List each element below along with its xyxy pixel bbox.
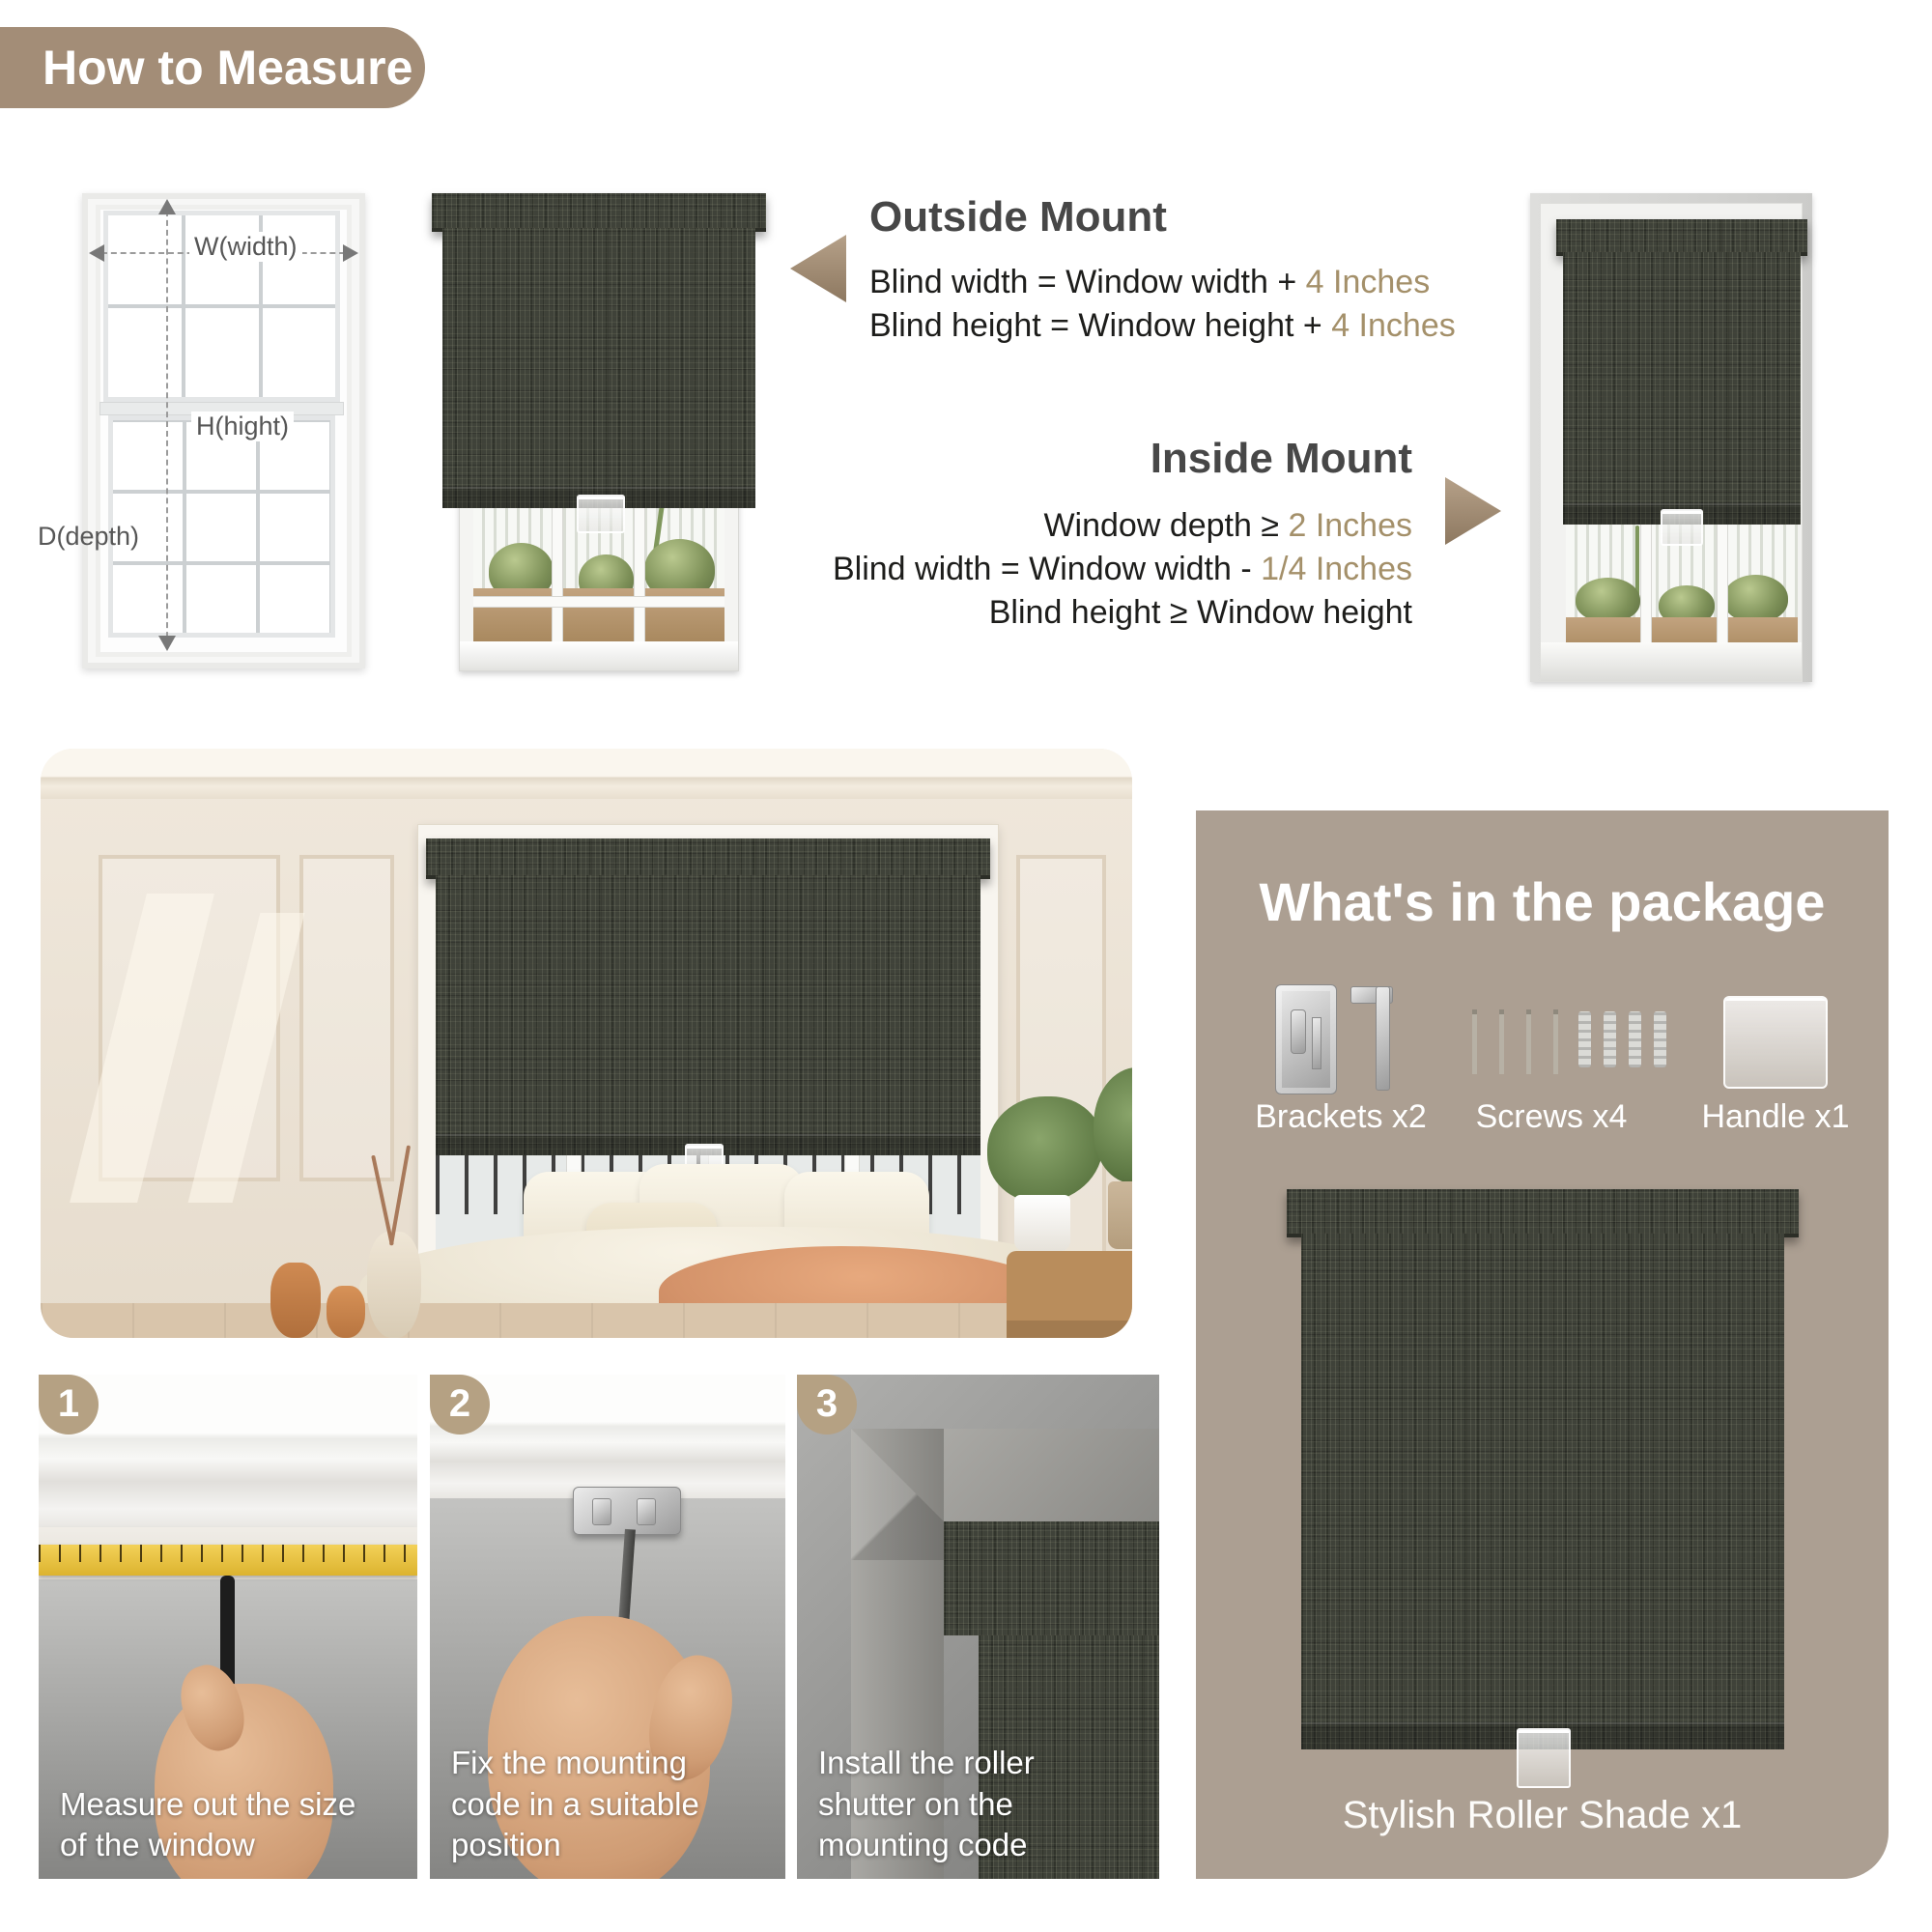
- infographic-how-to-measure: How to Measure W(width) H(hight) D(depth…: [0, 0, 1932, 1932]
- item-label: Handle x1: [1679, 1098, 1872, 1136]
- step-number-badge: 2: [430, 1375, 490, 1435]
- shade-body: [1563, 252, 1801, 525]
- step-3-photo: 3 Install the roller shutter on the moun…: [797, 1375, 1159, 1879]
- bracket-detail: [592, 1498, 611, 1525]
- item-label: Brackets x2: [1235, 1098, 1447, 1136]
- rule-accent: 4 Inches: [1331, 307, 1456, 344]
- inside-mount-arrow-icon: [1445, 477, 1501, 545]
- inside-mount-rule: Blind height ≥ Window height: [734, 591, 1412, 635]
- width-label: W(width): [189, 232, 302, 262]
- window-frame: [1540, 203, 1803, 682]
- wall-panel: [299, 855, 394, 1181]
- item-label: Screws x4: [1455, 1098, 1648, 1136]
- arrow-up-tip-icon: [158, 199, 176, 214]
- outside-mount-block: Outside Mount Blind width = Window width…: [869, 193, 1456, 348]
- step-2-photo: 2 Fix the mounting code in a suitable po…: [430, 1375, 785, 1879]
- garden-bush: [1723, 575, 1788, 622]
- crown-molding: [41, 749, 1132, 799]
- rule-accent: 2 Inches: [1288, 507, 1412, 544]
- rule-text: Window depth ≥: [1043, 507, 1288, 544]
- bracket-detail: [637, 1498, 656, 1525]
- inside-mount-shade-image: [1530, 193, 1812, 682]
- rule-text: Blind height ≥ Window height: [989, 594, 1412, 631]
- height-dashed-line: [166, 211, 168, 647]
- package-heading: What's in the package: [1196, 870, 1889, 933]
- outside-mount-rule: Blind height = Window height + 4 Inches: [869, 304, 1456, 348]
- shade-body: [436, 875, 980, 1155]
- inside-mount-heading: Inside Mount: [734, 435, 1412, 483]
- rule-text: Blind height = Window height +: [869, 307, 1331, 344]
- inside-mount-rule: Blind width = Window width - 1/4 Inches: [734, 548, 1412, 591]
- wood-floor: [41, 1303, 1132, 1338]
- rule-accent: 4 Inches: [1306, 264, 1431, 300]
- tape-ticks: [39, 1545, 417, 1562]
- product-shade-valance: [1287, 1189, 1799, 1237]
- inside-mount-rule: Window depth ≥ 2 Inches: [734, 504, 1412, 548]
- window-mullion: [1640, 523, 1652, 654]
- plant-pot: [1108, 1181, 1132, 1249]
- shade-valance: [432, 193, 766, 232]
- outside-mount-arrow-icon: [790, 235, 846, 302]
- depth-label: D(depth): [33, 522, 144, 552]
- package-panel: What's in the package Brackets x2 Screws…: [1196, 810, 1889, 1879]
- wood-stool: [1007, 1251, 1132, 1338]
- step-number-badge: 1: [39, 1375, 99, 1435]
- inside-mount-block: Inside Mount Window depth ≥ 2 Inches Bli…: [734, 435, 1412, 635]
- product-shade-handle: [1517, 1728, 1571, 1788]
- step-1-photo: 1 Measure out the size of the window: [39, 1375, 417, 1879]
- ceramic-vase: [367, 1232, 421, 1338]
- shade-valance: [426, 838, 990, 879]
- rule-text: Blind width = Window width +: [869, 264, 1306, 300]
- outside-mount-rule: Blind width = Window width + 4 Inches: [869, 261, 1456, 304]
- product-shade-body: [1301, 1234, 1784, 1749]
- height-label: H(hight): [191, 412, 294, 441]
- page-title: How to Measure: [0, 27, 425, 108]
- mounting-bracket: [573, 1487, 681, 1535]
- step-caption: Measure out the size of the window: [60, 1784, 384, 1865]
- shade-valance-corner: [944, 1521, 1159, 1635]
- window-sill: [460, 641, 738, 670]
- arrow-left-tip-icon: [89, 244, 104, 262]
- product-label: Stylish Roller Shade x1: [1196, 1794, 1889, 1837]
- plant-stem: [1635, 526, 1639, 599]
- shade-valance: [1556, 219, 1807, 256]
- tape-measure: [39, 1545, 417, 1576]
- garden-bush: [1576, 578, 1640, 622]
- step-number-badge: 3: [797, 1375, 857, 1435]
- shade-body: [442, 228, 755, 508]
- step-caption: Fix the mounting code in a suitable posi…: [451, 1743, 760, 1865]
- shade-handle: [1661, 509, 1703, 546]
- terracotta-vase: [327, 1286, 365, 1338]
- step-caption: Install the roller shutter on the mounti…: [818, 1743, 1137, 1865]
- outside-mount-heading: Outside Mount: [869, 193, 1456, 241]
- arrow-down-tip-icon: [158, 636, 176, 651]
- arrow-right-tip-icon: [343, 244, 358, 262]
- window-mullion: [473, 596, 724, 608]
- bedroom-photo: [41, 749, 1132, 1338]
- window-mullion: [1717, 523, 1728, 654]
- rule-text: Blind width = Window width -: [833, 551, 1261, 587]
- outside-mount-shade-image: [432, 193, 766, 676]
- rule-accent: 1/4 Inches: [1261, 551, 1412, 587]
- plant-pot: [1014, 1195, 1070, 1251]
- terracotta-vase: [270, 1263, 321, 1338]
- shade-handle: [577, 495, 625, 533]
- handle-icon: [1723, 996, 1828, 1089]
- window-sill: [1541, 642, 1802, 681]
